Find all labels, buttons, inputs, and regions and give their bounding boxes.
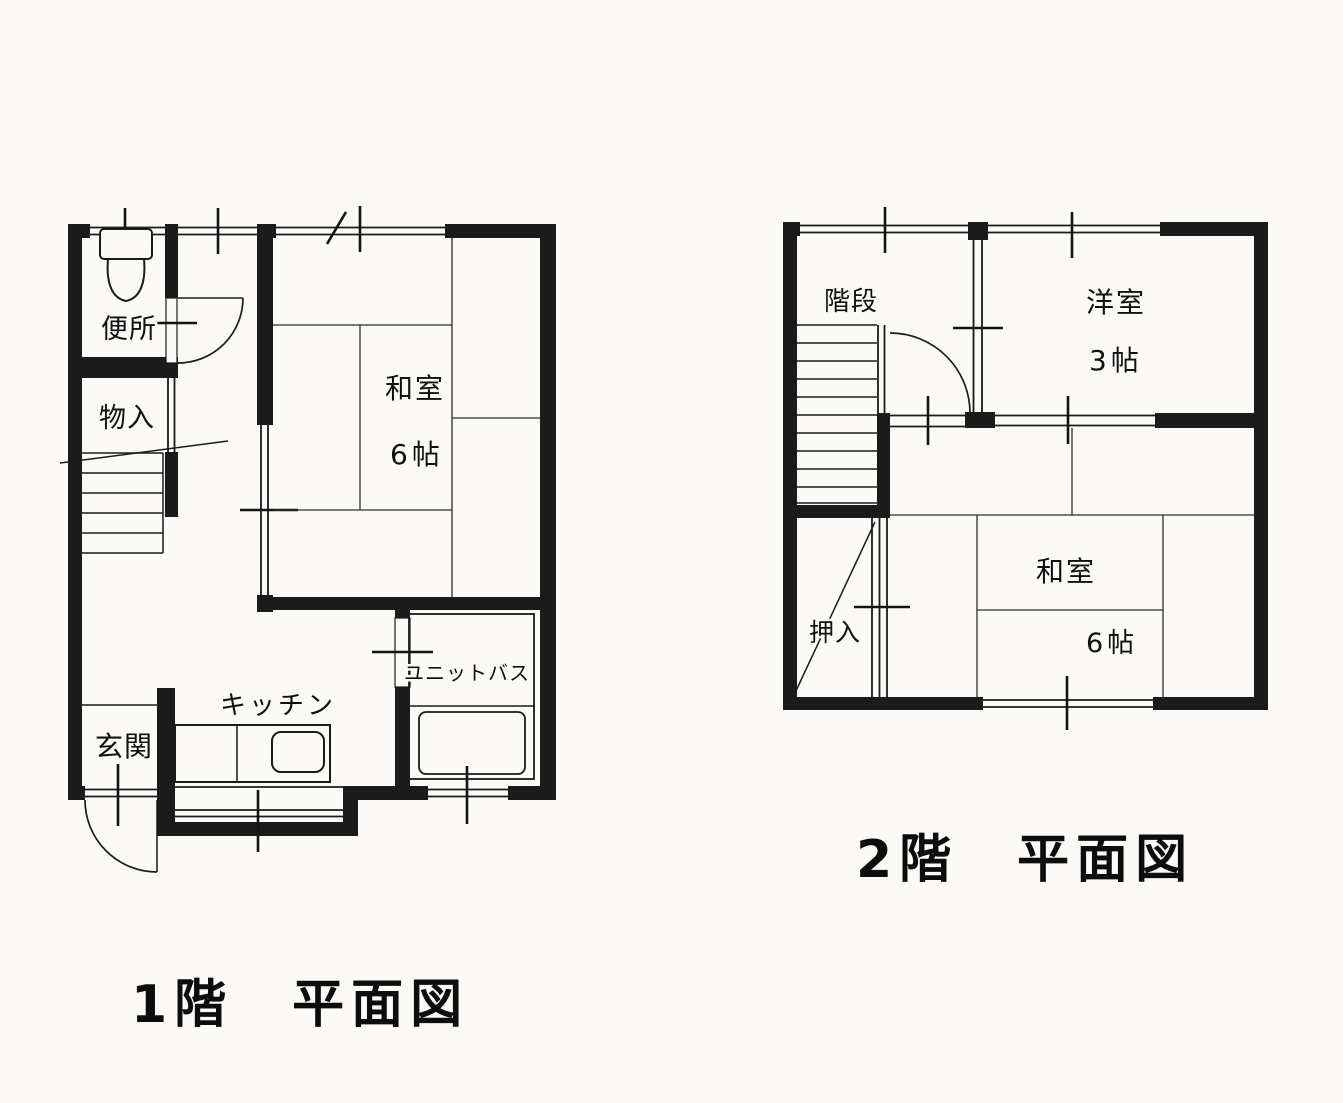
landing-door-arc (890, 333, 970, 413)
landing-door (878, 325, 970, 413)
floor2-plan: 階段 洋室 3帖 和室 6帖 押入 2階 平面図 (783, 207, 1268, 890)
room-size-washitsu-1f: 6帖 (390, 438, 444, 471)
floor-plan-page: 便所 物入 和室 6帖 キッチン 玄関 ユニットバス 1階 平面図 (0, 0, 1343, 1103)
room-label-western-room: 洋室 (1086, 286, 1146, 319)
room-label-stairs: 階段 (824, 287, 878, 317)
room-label-closet: 押入 (809, 618, 861, 647)
floor2-title: 2階 平面図 (856, 830, 1194, 890)
floor2-stairs (797, 325, 877, 503)
room-size-western-room: 3帖 (1089, 344, 1143, 377)
bathtub (419, 712, 525, 774)
kitchen-sink (272, 732, 324, 772)
room-label-unit-bath: ユニットバス (404, 661, 530, 685)
floor1-tatami-lines (273, 238, 540, 597)
floor1-plan: 便所 物入 和室 6帖 キッチン 玄関 ユニットバス 1階 平面図 (60, 206, 556, 1035)
room-size-washitsu-2f: 6帖 (1086, 628, 1138, 659)
stair-direction-line (60, 441, 228, 463)
floor-plan-drawing: 便所 物入 和室 6帖 キッチン 玄関 ユニットバス 1階 平面図 (0, 0, 1343, 1103)
room-label-entrance: 玄関 (95, 730, 153, 763)
kitchen-counter (175, 725, 330, 782)
toilet-door (152, 298, 243, 363)
room-label-washitsu-1f: 和室 (385, 372, 445, 405)
room-label-toilet: 便所 (101, 314, 157, 345)
room-label-washitsu-2f: 和室 (1036, 555, 1096, 588)
floor1-title: 1階 平面図 (131, 975, 469, 1035)
toilet-fixture (100, 229, 152, 301)
floor1-stairs (60, 441, 228, 553)
entrance-door-arc (85, 800, 157, 872)
room-label-kitchen: キッチン (220, 691, 336, 721)
room-label-storage: 物入 (99, 403, 155, 434)
